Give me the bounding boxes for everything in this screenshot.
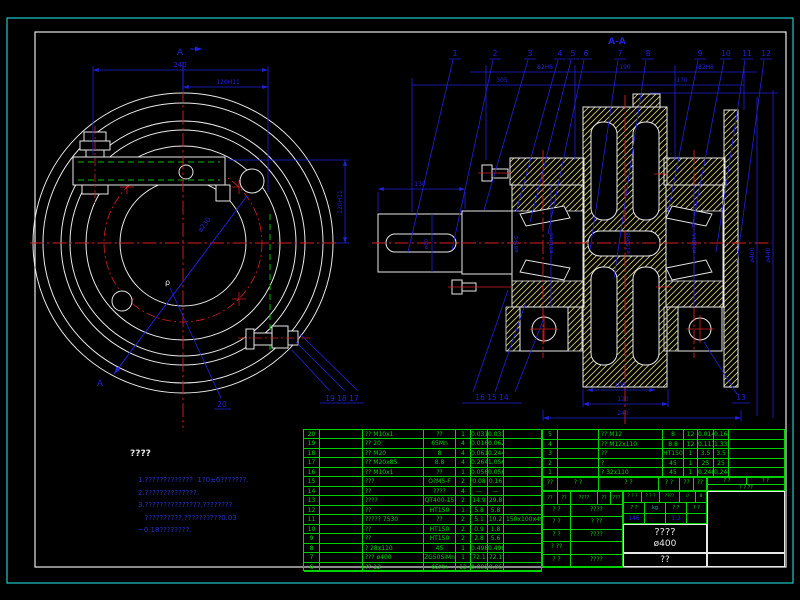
bom-left-cell: 0.056 <box>471 468 488 477</box>
section-label-bottom: A <box>97 379 104 389</box>
svg-text:82H8: 82H8 <box>698 64 714 71</box>
bom-left-cell <box>504 458 542 467</box>
bom-left-cell: 65Mn <box>424 563 456 572</box>
svg-text:120: 120 <box>617 396 629 403</box>
title-block-empty-2 <box>707 553 785 567</box>
bom-right-cell: 45 <box>663 459 684 469</box>
bom-left-cell: 20 <box>304 430 320 439</box>
title-block-bottom: ?? <box>623 553 707 567</box>
bom-left-cell: 18 <box>304 449 320 458</box>
bom-right-cell: 3 <box>543 449 558 459</box>
bom-left-cell: 72.1 <box>488 553 504 562</box>
bom-left-cell <box>504 563 542 572</box>
signature-cell: ? ?? <box>543 542 571 555</box>
svg-text:240: 240 <box>617 410 629 417</box>
bom-left-cell: 1 <box>456 430 471 439</box>
bom-left-cell: 4 <box>456 449 471 458</box>
bom-header-right: ? ?? ?? ? ?? <box>707 477 785 491</box>
flange-top <box>73 157 225 185</box>
bom-left-cell <box>504 477 542 486</box>
bom-left-cell: 8.8 <box>424 458 456 467</box>
title-block-name: ???? ø400 <box>623 524 707 553</box>
bom-left-cell <box>504 544 542 553</box>
svg-text:7: 7 <box>618 49 623 58</box>
title-grid-cell: ? ? ? <box>624 492 642 503</box>
callout-13: 13 <box>736 393 746 402</box>
bom-left-cell <box>320 449 363 458</box>
bom-right-cell <box>729 459 785 469</box>
bom-left-cell <box>320 496 363 505</box>
bom-left-cell: ???? <box>424 487 456 496</box>
svg-text:6: 6 <box>584 49 589 58</box>
title-grid-cell: ? ? <box>666 503 687 514</box>
bom-right-cell: 3.5 <box>714 449 729 459</box>
bom-left-cell: ??? ø400 <box>363 553 424 562</box>
bom-right-cell: 5 <box>543 430 558 440</box>
bom-left-cell: ?? M20 <box>363 449 424 458</box>
bom-left-cell: ?? 20 <box>363 439 424 448</box>
bom-header: ??? ?? ?? ????? <box>542 477 707 491</box>
svg-text:ø110k6: ø110k6 <box>692 232 698 253</box>
bom-left-cell <box>504 506 542 515</box>
bom-left-cell: 12 <box>304 506 320 515</box>
signature-cell: ???? <box>571 530 623 543</box>
dim-overall: 240 <box>173 61 186 69</box>
svg-text:ø60: ø60 <box>424 238 430 249</box>
dim-half: 120H11 <box>216 79 240 86</box>
svg-text:4: 4 <box>558 49 563 58</box>
title-grid-cell: // <box>680 492 696 503</box>
bom-right-cell: 25 <box>714 459 729 469</box>
svg-text:170: 170 <box>676 77 688 84</box>
bom-header-cell: ? ? <box>747 478 785 485</box>
bom-header-cell: ?? <box>694 478 707 492</box>
signature-cell: ? ? <box>543 505 571 518</box>
section-view: A-A 12 34 56 78 910 1112 16 15 14 13 <box>372 37 778 425</box>
notes-heading: ???? <box>130 449 316 460</box>
leader-20: 20 <box>217 400 227 409</box>
bom-right-cell: 2 <box>543 459 558 469</box>
bom-left-cell: 2.8 <box>471 534 488 543</box>
bom-right-cell <box>558 459 599 469</box>
bottom-callouts: 16 15 14 <box>475 393 509 402</box>
bom-left-cell: 0.9 <box>471 525 488 534</box>
bom-right-cell: 12 <box>684 440 698 450</box>
bom-right-cell: 25 <box>698 459 714 469</box>
bom-left-cell: ?? <box>424 515 456 524</box>
bom-left-cell: 0.016 <box>471 439 488 448</box>
bom-left-cell: 2 <box>456 525 471 534</box>
note-line: 3.???????????????,???????? <box>138 499 316 512</box>
bom-left-cell: 1.056 <box>488 458 504 467</box>
bom-left-cell: 15 <box>304 477 320 486</box>
signature-header-cell: ?? <box>543 492 558 505</box>
bom-right-cell: ?? <box>599 449 663 459</box>
bom-left-cell: 0.08 <box>471 477 488 486</box>
bom-left-cell: 1.8 <box>488 525 504 534</box>
title-grid-cell: ? ? ? <box>642 492 660 503</box>
bom-left-cell <box>320 430 363 439</box>
bom-left-cell <box>504 430 542 439</box>
bom-left-cell <box>320 563 363 572</box>
bom-left-cell: 4 <box>456 439 471 448</box>
bom-right-cell: 12 <box>684 430 698 440</box>
svg-text:3: 3 <box>528 49 533 58</box>
bom-left-cell: 29.8 <box>488 496 504 505</box>
bom-left-cell: QT400-15 <box>424 496 456 505</box>
bom-left-cell: 8 <box>304 544 320 553</box>
bom-left-cell: ZG50SiMn <box>424 553 456 562</box>
signature-table: ?????????????? ?????? ?? ??? ?????? ??? … <box>542 491 623 567</box>
bom-left-cell: 6 <box>304 563 320 572</box>
bom-left-cell: 13 <box>304 496 320 505</box>
signature-cell: ? ? <box>543 555 571 568</box>
cad-drawing-sheet: A A 240 120H11 120H11 ø230 ρ 20 19 18 17 <box>0 0 800 600</box>
section-title: A-A <box>608 37 626 47</box>
bom-left-cell: ?? 12 <box>363 563 424 572</box>
centerlines <box>30 88 340 428</box>
signature-cell: ? ?? <box>571 517 623 530</box>
signature-header-cell: ?? <box>598 492 611 505</box>
bom-left-cell: ?? <box>363 534 424 543</box>
svg-text:12: 12 <box>761 49 771 58</box>
bolt-right <box>246 326 298 349</box>
signature-cell: ???? <box>571 505 623 518</box>
flange-hole-top <box>179 165 193 179</box>
svg-text:8: 8 <box>646 49 651 58</box>
bom-right-cell: ?? M12x110 <box>599 440 663 450</box>
svg-text:190: 190 <box>619 64 631 71</box>
bom-left-cell <box>320 458 363 467</box>
bom-left-cell: ???? <box>363 496 424 505</box>
bom-left-cell: 14.9 <box>471 496 488 505</box>
bom-left-cell: 1 <box>456 506 471 515</box>
bom-left-cell: 2 <box>456 477 471 486</box>
bom-right-cell <box>729 440 785 450</box>
note-line: ~0.18????????. <box>138 524 316 537</box>
bom-left-cell: 4 <box>456 487 471 496</box>
note-line: 1.????????????? 1?0±6???????. <box>138 474 316 487</box>
bom-header-cell: ? ? <box>708 478 747 485</box>
bom-right-cell: 0.168 <box>714 430 729 440</box>
bom-left-cell: 17 <box>304 458 320 467</box>
bom-left-cell: 10 <box>304 525 320 534</box>
bom-right-cell <box>729 449 785 459</box>
title-grid-cell: kg <box>645 503 666 514</box>
svg-text:5: 5 <box>571 49 576 58</box>
bom-left-cell: 14 <box>304 487 320 496</box>
bom-left-cell: 1 <box>456 544 471 553</box>
bom-left-cell <box>504 468 542 477</box>
dim-side: 120H11 <box>337 190 344 214</box>
bom-left-cell: ?? <box>424 430 456 439</box>
callout-numbers: 12 34 56 78 910 1112 <box>453 49 771 58</box>
front-leaders <box>170 288 364 409</box>
bom-left-cell: 19 <box>304 439 320 448</box>
bom-left-cell: ?? <box>363 506 424 515</box>
svg-text:9: 9 <box>698 49 703 58</box>
bom-table-right: 5?? M128120.0140.1684?? M12x1108.8120.11… <box>542 429 785 477</box>
title-grid-cell: ???? <box>660 492 680 503</box>
sheet-label: ?? <box>660 555 670 565</box>
bom-header-cell: ?? <box>680 478 694 492</box>
technical-notes: ???? 1.????????????? 1?0±6???????. 2.???… <box>126 449 316 537</box>
signature-cell: ???? <box>571 555 623 568</box>
front-view: A A 240 120H11 120H11 ø230 ρ 20 19 18 17 <box>30 48 364 428</box>
signature-cell <box>571 542 623 555</box>
bom-left-cell: 0.062 <box>488 439 504 448</box>
leader-19-18-17: 19 18 17 <box>325 394 359 403</box>
dia-440: ø440 <box>765 247 772 262</box>
bom-right-cell: 1 <box>684 449 698 459</box>
bom-left-cell <box>320 553 363 562</box>
bom-right-cell <box>558 430 599 440</box>
bom-left-cell: ??? <box>363 477 424 486</box>
bom-left-cell: ?? M10x1 <box>363 430 424 439</box>
label-p: ρ <box>165 278 170 287</box>
bom-left-cell: 0.498 <box>471 544 488 553</box>
bom-right-cell: 4 <box>543 440 558 450</box>
bom-left-cell: ?? M10x1 <box>363 468 424 477</box>
bom-left-cell <box>504 439 542 448</box>
svg-text:100: 100 <box>614 382 626 389</box>
bom-left-cell: 8 <box>424 449 456 458</box>
bom-left-cell: 0.031 <box>471 430 488 439</box>
bom-left-cell <box>504 534 542 543</box>
bom-left-cell: 0.264 <box>471 458 488 467</box>
part-name: ???? <box>654 527 675 539</box>
bom-left-cell: 16 <box>304 468 320 477</box>
bom-right-cell: HT150 <box>663 449 684 459</box>
bom-left-cell: 5.8 <box>471 506 488 515</box>
bom-left-cell: 2 <box>456 496 471 505</box>
bom-left-cell: — <box>488 487 504 496</box>
bom-left-cell: HT150 <box>424 506 456 515</box>
bom-left-cell: — <box>471 487 488 496</box>
bom-header-cell: ? ? <box>599 478 659 492</box>
bom-right-cell: 0.014 <box>698 430 714 440</box>
note-line: ??????????,??????????0.03 <box>138 512 316 525</box>
bom-right-cell: ? <box>599 459 663 469</box>
bom-left-cell: 0.244 <box>488 449 504 458</box>
bom-left-cell: 5.8 <box>488 506 504 515</box>
bom-left-cell: ????? 7530 <box>363 515 424 524</box>
bom-left-cell: ?? M20x85 <box>363 458 424 467</box>
dia-400: ø400 <box>749 247 756 262</box>
bom-left-cell: 12 <box>456 563 471 572</box>
svg-text:305: 305 <box>496 77 508 84</box>
bom-left-cell <box>320 525 363 534</box>
signature-header-cell: ???? <box>571 492 598 505</box>
title-block-grid: ? ? ?? ? ?????//8? ?kg? ?? ?1461:2 <box>623 491 707 524</box>
bom-left-cell: 5.6 <box>488 534 504 543</box>
bom-left-cell: 0.005 <box>471 563 488 572</box>
title-grid-cell: ? ? <box>624 503 645 514</box>
hub-bore <box>588 231 660 256</box>
bom-left-cell: 5.1 <box>471 515 488 524</box>
section-label-top: A <box>177 48 184 58</box>
signature-header-cell: ??? <box>611 492 623 505</box>
title-grid-cell: 8 <box>696 492 707 503</box>
bom-left-cell: HT150 <box>424 534 456 543</box>
bom-left-cell: ? 28x110 <box>363 544 424 553</box>
bom-left-cell: 0.498 <box>488 544 504 553</box>
bom-left-cell: 2 <box>456 515 471 524</box>
bom-left-cell: 2 <box>456 534 471 543</box>
bom-left-cell: 72.1 <box>471 553 488 562</box>
bom-right-cell <box>729 430 785 440</box>
bom-left-cell: 1 <box>456 553 471 562</box>
signature-cell: ? ? <box>543 530 571 543</box>
bom-left-cell <box>504 496 542 505</box>
flange-hole-right <box>240 169 264 193</box>
bom-left-cell <box>504 449 542 458</box>
bom-right-cell: 8.8 <box>663 440 684 450</box>
bom-left-cell <box>504 553 542 562</box>
bom-left-cell <box>320 468 363 477</box>
bom-left-cell: 0.16 <box>488 477 504 486</box>
bom-table-left: 20?? M10x1??10.0310.03119?? 2065Mn40.016… <box>303 429 542 571</box>
svg-text:ø85k6: ø85k6 <box>514 235 520 253</box>
bom-left-cell <box>504 525 542 534</box>
bom-left-cell <box>320 544 363 553</box>
bom-left-cell: ?? <box>363 525 424 534</box>
bom-left-cell <box>320 477 363 486</box>
bom-left-cell: 0.031 <box>488 430 504 439</box>
bom-right-cell: ?? M12 <box>599 430 663 440</box>
bom-left-cell: 0.06 <box>488 563 504 572</box>
bom-right-cell: 0.111 <box>698 440 714 450</box>
bom-left-cell <box>320 534 363 543</box>
svg-text:ø180H8: ø180H8 <box>626 232 632 254</box>
bom-left-cell: 10.2 <box>488 515 504 524</box>
bom-header-cell: ? ? <box>659 478 680 492</box>
bom-left-cell: 0.056 <box>488 468 504 477</box>
signature-header-cell: ?? <box>558 492 571 505</box>
bom-left-cell: HT150 <box>424 525 456 534</box>
svg-text:130: 130 <box>414 181 426 188</box>
bom-left-cell: O?M5-F <box>424 477 456 486</box>
bom-left-cell: 1 <box>456 468 471 477</box>
signature-cell: ? ? <box>543 517 571 530</box>
bom-left-cell: 65Mn <box>424 439 456 448</box>
bom-left-cell: 11 <box>304 515 320 524</box>
svg-text:2: 2 <box>493 49 498 58</box>
part-size: ø400 <box>654 539 677 550</box>
bom-left-cell <box>320 506 363 515</box>
bom-left-cell <box>320 515 363 524</box>
bom-left-cell: ?? <box>363 487 424 496</box>
bom-right-cell <box>558 440 599 450</box>
bom-left-cell <box>320 487 363 496</box>
svg-text:82H8: 82H8 <box>537 64 553 71</box>
bom-right-cell: 1.332 <box>714 440 729 450</box>
bom-right-cell: 8 <box>663 430 684 440</box>
hole-lower-left <box>112 291 132 311</box>
bom-right-cell: 3.5 <box>698 449 714 459</box>
bom-right-cell <box>558 449 599 459</box>
bom-header-cell: ? ? <box>558 478 599 492</box>
bom-left-cell: 150x100x49.5 <box>504 515 542 524</box>
svg-text:11: 11 <box>742 49 752 58</box>
note-line: 2.??????????????. <box>138 487 316 500</box>
bom-left-cell: 9 <box>304 534 320 543</box>
bom-left-cell <box>504 487 542 496</box>
bom-left-cell: 4 <box>456 458 471 467</box>
bom-left-cell: 7 <box>304 553 320 562</box>
bom-header-cell: ?? <box>543 478 558 492</box>
bom-right-cell: 1 <box>684 459 698 469</box>
bom-left-cell <box>320 439 363 448</box>
dim-diag: ø230 <box>196 216 212 234</box>
svg-text:ø110k6: ø110k6 <box>549 232 555 253</box>
bom-left-cell: ?? <box>424 468 456 477</box>
svg-text:10: 10 <box>721 49 731 58</box>
bom-left-cell: 0.061 <box>471 449 488 458</box>
svg-text:1: 1 <box>453 49 458 58</box>
bom-left-cell: 45 <box>424 544 456 553</box>
title-block-empty-1 <box>707 491 785 553</box>
title-grid-cell: ? ? <box>687 503 707 514</box>
